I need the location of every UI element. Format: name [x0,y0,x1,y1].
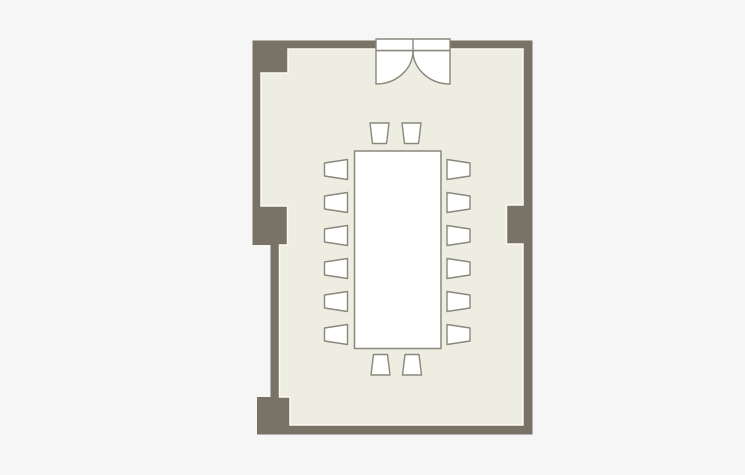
chair-left [325,325,348,345]
pillar-left [253,205,288,245]
chair-left [325,292,348,312]
chair-left [325,226,348,246]
chair-right [447,193,470,213]
wall-bottom [257,425,533,435]
chair-top [370,123,389,144]
chair-bottom [371,355,390,376]
wall-corner-top-left [253,41,289,74]
chair-right [447,226,470,246]
wall-right [523,41,533,435]
chair-left [325,160,348,180]
floorplan-canvas [0,0,745,475]
chair-right [447,259,470,279]
pillar-right [507,205,524,244]
chair-right [447,292,470,312]
chair-right [447,325,470,345]
wall-left-lower [271,245,280,397]
conference-table [355,151,442,349]
chair-left [325,259,348,279]
chair-left [325,193,348,213]
floorplan-svg [0,0,745,475]
chair-bottom [403,355,422,376]
chair-right [447,160,470,180]
wall-left-upper [253,73,262,206]
chair-top [402,123,421,144]
